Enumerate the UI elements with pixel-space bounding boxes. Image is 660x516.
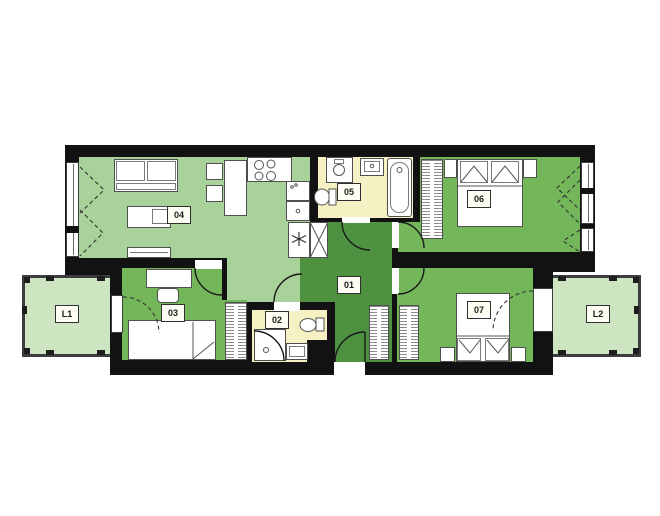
shaft-block [307, 340, 335, 362]
wall-right-corner [533, 252, 595, 272]
balcony-post [609, 276, 617, 281]
room-label-01: 01 [337, 276, 361, 294]
entrance-opening [334, 362, 365, 375]
balcony-post [634, 306, 639, 314]
balcony-post [46, 276, 54, 281]
room-01-hall-top [328, 222, 392, 258]
room-label-02: 02 [265, 311, 289, 329]
desk [146, 269, 192, 288]
window-mullion [66, 226, 79, 233]
floor-plan: 04 05 06 01 03 02 07 L1 L2 [0, 0, 660, 516]
kitchen-sink [286, 181, 310, 201]
sofa-seat [116, 183, 176, 190]
wardrobe-rail [377, 307, 381, 358]
wardrobe-room06 [421, 159, 443, 239]
wardrobe-room03 [225, 302, 247, 360]
kitchen-cabinet [286, 201, 310, 221]
door-opening-bath02 [274, 302, 300, 311]
door-opening-bath05 [342, 217, 370, 223]
washing-machine-panel [334, 159, 344, 164]
pillow [491, 161, 519, 183]
chair [206, 185, 223, 202]
nightstand [523, 159, 537, 178]
nightstand [511, 347, 526, 362]
balcony-post [24, 348, 30, 354]
door-opening-room07 [392, 268, 399, 294]
balcony-door-room07 [533, 288, 553, 332]
room-06-door-nook [398, 222, 420, 252]
balcony-post [633, 348, 639, 354]
wardrobe-rail [234, 304, 238, 358]
window-glass-line [588, 230, 589, 250]
balcony-post [22, 306, 27, 314]
door-opening-room06 [392, 222, 399, 248]
room-label-03: 03 [161, 304, 185, 322]
shower [254, 329, 286, 361]
sofa-cushion [147, 161, 176, 181]
balcony-post [609, 350, 617, 355]
balcony-door-room03 [111, 295, 123, 333]
window-glass-line [73, 164, 74, 255]
wardrobe-hall [369, 305, 389, 360]
room-label-l1: L1 [55, 305, 79, 323]
dining-table [224, 160, 247, 216]
wardrobe-rail [407, 307, 411, 358]
kitchen-counter-stove [247, 157, 292, 182]
single-bed [128, 320, 216, 360]
window-mullion [581, 188, 594, 194]
fridge [288, 222, 310, 258]
ventilation-shaft [310, 222, 328, 258]
room-label-07: 07 [467, 301, 491, 319]
room-label-05: 05 [337, 183, 361, 201]
room-label-06: 06 [467, 190, 491, 208]
balcony-post [97, 350, 105, 355]
bath02-sink-basin [289, 346, 305, 357]
bathtub-inner [390, 162, 409, 213]
pillow [457, 338, 481, 361]
coffee-table-tray [152, 209, 168, 224]
window-room04-left [66, 162, 79, 257]
door-opening-room03 [195, 260, 222, 269]
sideboard-line [130, 252, 168, 253]
room-label-l2: L2 [586, 305, 610, 323]
desk-chair [157, 288, 179, 303]
nightstand [444, 159, 457, 178]
pillow [485, 338, 509, 361]
balcony-post [558, 350, 566, 355]
chair [206, 163, 223, 180]
room-04-corridor [227, 258, 300, 302]
balcony-post [558, 276, 566, 281]
sofa-cushion [116, 161, 145, 181]
window-room06-right-small [581, 228, 594, 252]
balcony-post [24, 277, 30, 283]
balcony-post [46, 350, 54, 355]
pillow [460, 161, 488, 183]
wardrobe-room07 [399, 305, 419, 360]
balcony-post [633, 277, 639, 283]
room-label-04: 04 [167, 206, 191, 224]
nightstand [440, 347, 455, 362]
balcony-post [97, 276, 105, 281]
wall-left-corner [65, 255, 122, 275]
wardrobe-rail [430, 161, 434, 237]
bath05-sink-basin [364, 161, 380, 172]
